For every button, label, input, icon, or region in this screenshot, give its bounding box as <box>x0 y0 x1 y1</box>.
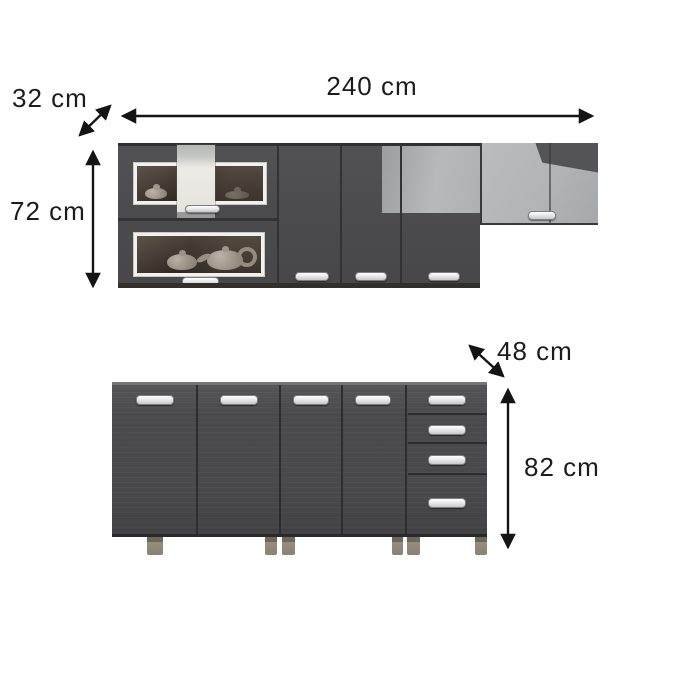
dimension-label-upper-height: 72 cm <box>10 196 86 227</box>
door-handle <box>355 395 391 405</box>
door-divider <box>340 146 342 283</box>
kitchen-cabinet-dimension-diagram: 32 cm 240 cm 72 cm 48 cm 82 cm <box>0 0 700 700</box>
door-divider <box>279 385 281 535</box>
cabinet-leg <box>282 537 295 555</box>
drawer-divider <box>408 413 487 415</box>
dimension-label-upper-depth: 32 cm <box>12 83 88 114</box>
door-divider <box>400 146 402 283</box>
cabinet-leg <box>475 537 487 555</box>
cabinet-leg <box>265 537 277 555</box>
extractor-hood-panel <box>177 145 215 212</box>
door-handle <box>355 272 387 281</box>
door-reflection <box>382 146 480 213</box>
drawer-divider <box>408 473 487 475</box>
short-section-bottom-edge <box>482 223 598 225</box>
drawer-handle <box>428 498 466 508</box>
upper-cabinet-bottom-edge <box>118 283 480 288</box>
door-handle <box>136 395 174 405</box>
door-handle <box>185 205 220 213</box>
door-handle <box>220 395 258 405</box>
cabinet-leg <box>147 537 163 555</box>
glass-sheen <box>137 236 261 273</box>
lower-base-cabinet <box>112 382 487 537</box>
drawer-handle <box>428 395 466 405</box>
cabinet-leg <box>407 537 420 555</box>
dimension-label-lower-depth: 48 cm <box>497 336 573 367</box>
lower-cabinet-top-edge <box>112 382 487 385</box>
lower-cabinet-bottom-edge <box>112 534 487 537</box>
dimension-label-upper-width: 240 cm <box>302 71 442 102</box>
glass-door-bottom <box>133 232 265 277</box>
glass-door-bottom-interior <box>137 236 261 273</box>
dimension-arrows <box>0 0 700 700</box>
drawer-handle <box>428 455 466 465</box>
door-divider <box>196 385 198 535</box>
upper-wall-cabinet <box>118 143 598 288</box>
upper-cabinet-body <box>118 143 480 288</box>
dimension-label-lower-height: 82 cm <box>524 452 600 483</box>
glass-section-divider <box>118 218 277 221</box>
door-handle <box>295 272 329 281</box>
upper-cabinet-short-section <box>480 143 598 225</box>
door-divider <box>277 146 279 283</box>
drawer-handle <box>428 425 466 435</box>
door-divider <box>341 385 343 535</box>
door-handle <box>293 395 329 405</box>
door-handle <box>528 211 556 220</box>
door-divider <box>405 385 407 535</box>
cabinet-leg <box>392 537 403 555</box>
drawer-divider <box>408 442 487 444</box>
door-handle <box>428 272 460 281</box>
